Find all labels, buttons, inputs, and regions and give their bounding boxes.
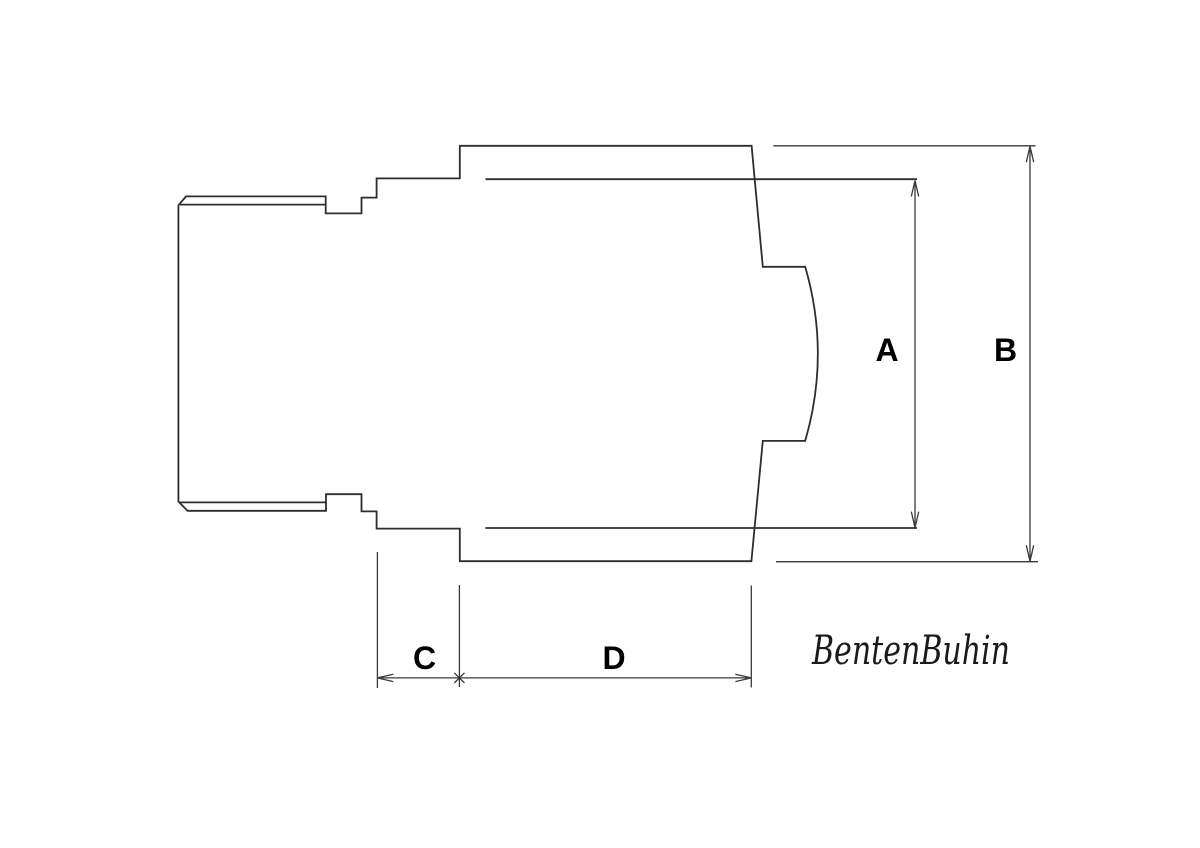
dimension-b-label: B <box>994 332 1017 368</box>
dimension-labels: A B C D <box>413 332 1017 676</box>
dimension-c-label: C <box>413 640 436 676</box>
part-outline <box>178 146 917 561</box>
technical-drawing: A B C D BentenBuhin <box>0 0 1200 848</box>
dimension-a-label: A <box>875 332 898 368</box>
dimensions <box>377 146 1038 688</box>
logo-text: BentenBuhin <box>811 628 1010 674</box>
drawing-canvas: A B C D BentenBuhin <box>0 0 1200 848</box>
part-profile <box>178 146 817 561</box>
dimension-d-label: D <box>602 640 625 676</box>
dimension-a <box>911 181 918 528</box>
